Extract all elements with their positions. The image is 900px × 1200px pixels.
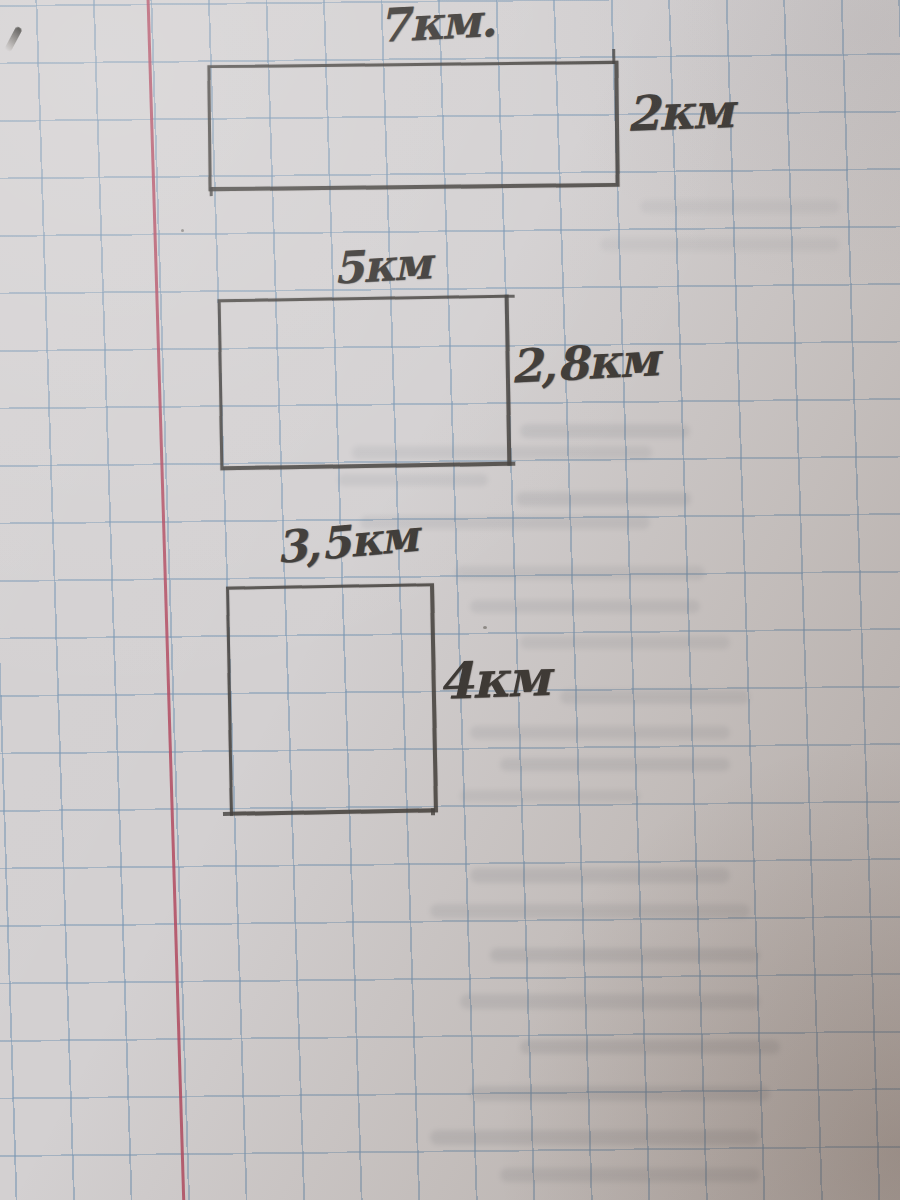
pencil-corner-tick xyxy=(223,812,233,816)
rectangle-1 xyxy=(207,61,619,191)
bleed-through-mark xyxy=(460,790,640,802)
bleed-through-mark xyxy=(560,690,750,704)
bleed-through-mark xyxy=(520,636,730,649)
rect1-width-label: 7км. xyxy=(377,0,497,53)
bleed-through-mark xyxy=(500,758,730,771)
bleed-through-mark xyxy=(516,492,691,506)
bleed-through-mark xyxy=(520,424,690,438)
bleed-through-mark xyxy=(500,1168,760,1182)
bleed-through-mark xyxy=(470,726,730,739)
bleed-through-mark xyxy=(470,868,730,883)
paper-speck xyxy=(181,229,184,232)
bleed-through-mark xyxy=(640,200,840,213)
bleed-through-mark xyxy=(470,600,700,613)
bleed-through-mark xyxy=(430,904,750,918)
rect1-height-label: 2км xyxy=(625,82,734,142)
bleed-through-mark xyxy=(600,238,840,251)
rectangle-3 xyxy=(226,583,438,816)
pencil-corner-tick xyxy=(431,808,435,815)
rect3-height-label: 4км xyxy=(437,648,550,711)
bleed-through-mark xyxy=(338,474,488,486)
rectangle-2 xyxy=(218,295,512,471)
bleed-through-mark xyxy=(455,566,705,580)
bleed-through-mark xyxy=(460,994,760,1009)
bleed-through-mark xyxy=(470,1086,770,1101)
pencil-corner-tick xyxy=(210,187,213,196)
bleed-through-mark xyxy=(490,948,760,962)
pencil-corner-tick xyxy=(507,462,515,466)
pencil-corner-tick xyxy=(612,49,615,64)
rect2-height-label: 2,8км xyxy=(509,332,660,394)
paper-speck xyxy=(483,626,487,629)
pencil-corner-tick xyxy=(505,295,515,298)
bleed-through-mark xyxy=(520,1040,780,1054)
rect2-width-label: 5км xyxy=(332,237,432,293)
notebook-page-photo: 7км. 2км 5км 2,8км 3,5км 4км xyxy=(0,0,900,1200)
bleed-through-mark xyxy=(430,1130,760,1145)
